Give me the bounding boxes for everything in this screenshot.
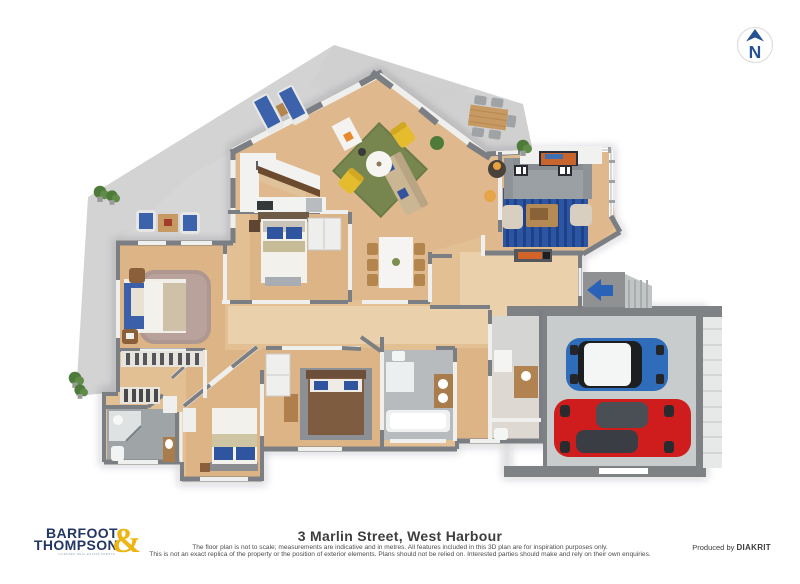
svg-text:N: N	[749, 42, 762, 62]
